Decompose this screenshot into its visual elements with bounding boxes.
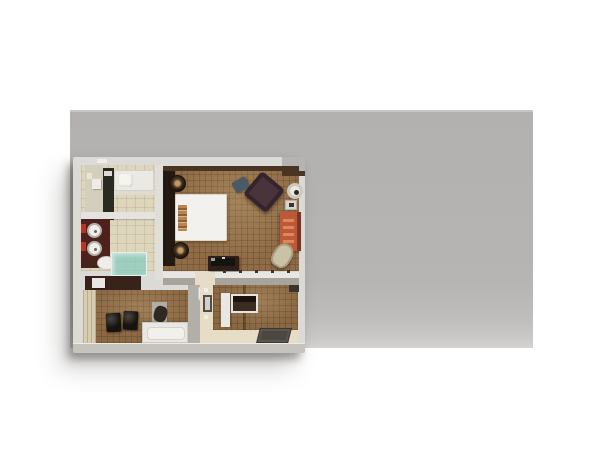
notch-wall-trim <box>282 171 305 176</box>
black-ottoman-2 <box>123 311 139 331</box>
telephone-table <box>285 200 297 210</box>
corner-fixture <box>289 285 299 292</box>
sink-bottom <box>87 241 102 256</box>
round-side-table <box>287 183 303 199</box>
tv-screen-glint <box>222 257 225 259</box>
light-switch <box>204 288 208 292</box>
bottom-wall-face <box>73 343 305 353</box>
wall-vent <box>97 159 107 163</box>
entry-console-table <box>231 294 258 313</box>
wall-mirror <box>203 295 212 312</box>
red-towel-bottom <box>81 242 86 251</box>
hallway-opening <box>195 272 215 285</box>
table-lamp-base <box>294 190 299 195</box>
tv-screen-glint <box>211 258 215 261</box>
bed-pillows <box>178 205 187 231</box>
closet-doors <box>83 290 96 343</box>
sink-top <box>87 223 102 238</box>
bathtub-ledge <box>114 191 154 195</box>
bathroom-door <box>92 179 101 189</box>
doormat <box>256 328 292 343</box>
bedroom-top-wall-trim <box>163 166 299 171</box>
render-canvas <box>0 0 600 450</box>
tv-console <box>208 256 239 271</box>
minibar-top <box>147 327 185 340</box>
bathtub <box>114 170 154 191</box>
ledge-items <box>223 270 293 273</box>
lamp-top <box>175 181 180 186</box>
armoire-shelves <box>283 219 294 243</box>
entry-door-frame <box>221 293 230 327</box>
bathtub-basin <box>119 174 133 187</box>
partition-panel <box>104 171 112 176</box>
sink-drain <box>94 230 97 233</box>
telephone <box>289 203 294 207</box>
light-switch <box>204 315 208 319</box>
mid-wall-face-right <box>215 278 299 285</box>
console-table-top <box>233 296 256 302</box>
king-bed <box>175 194 227 241</box>
nightstand-top <box>169 175 186 192</box>
lamp-bottom <box>178 248 183 253</box>
mid-wall-face-left <box>163 278 195 285</box>
room-safe <box>92 278 105 288</box>
bathroom-mid-wall <box>81 212 159 219</box>
glass-shower-enclosure <box>111 252 147 276</box>
floorplan <box>73 157 305 352</box>
black-ottoman-1 <box>106 313 122 333</box>
minibar-cabinet <box>142 322 188 343</box>
red-towel-top <box>81 224 86 233</box>
nightstand-bottom <box>172 242 189 259</box>
sink-drain <box>94 248 97 251</box>
